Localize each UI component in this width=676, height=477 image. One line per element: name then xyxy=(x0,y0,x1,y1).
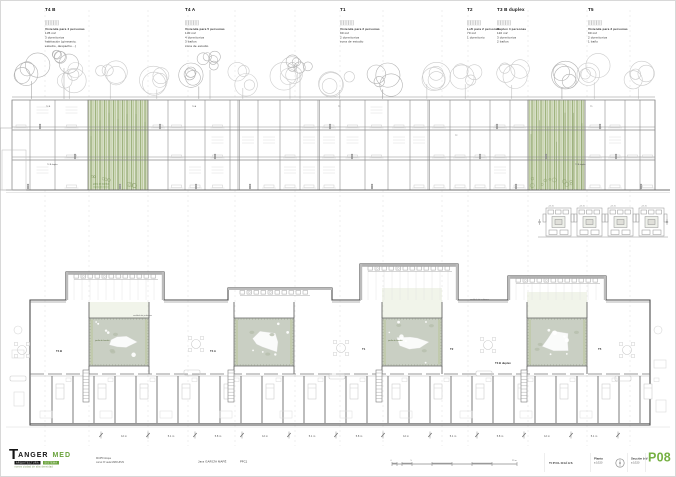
titleblock-divider xyxy=(544,453,545,472)
dimension-label: 5.1 m xyxy=(591,434,598,438)
courtyard-label: jardín de bambú xyxy=(387,340,402,342)
dimension-label: 5.8 m xyxy=(356,434,363,438)
plan-unit-label: T3 B duplex xyxy=(495,361,511,365)
dimension-label: 12 m xyxy=(262,434,268,438)
keyplan-level-label: +05.20 xyxy=(641,206,647,208)
project-credits: MUP5 bloque curso Nº aula MMCUP29 xyxy=(96,457,124,465)
section-room-label: T4 B duplex xyxy=(47,164,58,166)
key-plan: +05.20+05.20+05.20+05.20 xyxy=(538,206,668,238)
titleblock-divider xyxy=(627,453,628,472)
planta-scale-block: Planta a 1/150 xyxy=(594,458,603,465)
sheet-number: P08 xyxy=(648,451,671,466)
logo-med: MED xyxy=(52,451,71,459)
logo-rest: ANGER xyxy=(18,451,48,459)
project-code: PFC1 xyxy=(240,461,247,464)
courtyard-label: jardín de bambú xyxy=(94,340,109,342)
dimension-label: 5.1 m xyxy=(309,434,316,438)
sheet-subject: TIPOLOGÍAS xyxy=(549,462,573,466)
grid-guides xyxy=(45,10,630,446)
plan-unit-label: T1 xyxy=(362,347,366,351)
floor-plan-drawing: T4 BT4 AT1T2T3 B duplexT5vestíbulo de ja… xyxy=(6,264,670,427)
trees-sketch xyxy=(14,50,654,99)
keyplan-level-label: +05.20 xyxy=(610,206,616,208)
credit-line-2: curso Nº aula MMCUP29 xyxy=(96,461,124,465)
title-block: TANGERMED ARQUITECTURA SISTEMA nueva ciu… xyxy=(0,446,676,477)
dimension-row: 12 m5.1 m5.8 m12 m5.1 m5.8 m12 m5.1 m5.8… xyxy=(99,432,619,439)
titleblock-divider xyxy=(645,453,646,472)
atrium-label: patio de bambú xyxy=(93,183,110,186)
planta-title: Planta xyxy=(594,458,603,461)
dimension-label: 12 m xyxy=(403,434,409,438)
planta-scale: a 1/150 xyxy=(594,461,603,464)
dimension-label: 5.8 m xyxy=(215,434,222,438)
seccion-scale: a 1/150 xyxy=(631,461,648,464)
plan-unit-label: T2 xyxy=(450,347,454,351)
dimension-label: 12 m xyxy=(121,434,127,438)
plan-note-label: vestíbulo de jardineras xyxy=(470,298,489,301)
logo-bar-sistema: SISTEMA xyxy=(43,461,59,465)
logo-tanger-med: TANGERMED ARQUITECTURA SISTEMA nueva ciu… xyxy=(9,449,71,468)
section-room-label: T4 A xyxy=(192,105,197,108)
plan-unit-label: T5 xyxy=(598,347,602,351)
logo-bars: ARQUITECTURA SISTEMA xyxy=(15,461,72,465)
dimension-label: 12 m xyxy=(544,434,550,438)
logo-wordmark: TANGERMED xyxy=(9,449,71,460)
dimension-label: 5.1 m xyxy=(450,434,457,438)
plan-unit-label: T4 A xyxy=(210,349,216,353)
keyplan-level-label: +05.20 xyxy=(548,206,554,208)
keyplan-level-label: +05.20 xyxy=(579,206,585,208)
plan-unit-label: T4 B xyxy=(56,349,62,353)
author-name: Jara GARCÍA MAFÉ xyxy=(198,461,227,464)
seccion-title: Sección b-b' xyxy=(631,458,648,461)
logo-bar-arquitectura: ARQUITECTURA xyxy=(15,461,41,465)
atrium-label-sub: vegetación interior xyxy=(93,186,109,189)
section-drawing: T4 BT4 B duplexT4 AT1T2T3 B duplexT5pati… xyxy=(0,50,670,192)
logo-caption: nueva ciudad de alta densidad xyxy=(15,465,72,468)
titleblock-divider xyxy=(590,453,591,472)
section-room-label: T3 B duplex xyxy=(575,164,586,166)
plan-note-label: vestíbulo de jardineras xyxy=(133,314,152,317)
section-room-label: T4 B xyxy=(46,106,51,108)
drawing-layer: T4 BT4 B duplexT4 AT1T2T3 B duplexT5pati… xyxy=(0,0,676,477)
seccion-scale-block: Sección b-b' a 1/150 xyxy=(631,458,648,465)
dimension-label: 5.8 m xyxy=(497,434,504,438)
dimension-label: 5.1 m xyxy=(168,434,175,438)
drawing-sheet: T4 BT4 B duplexT4 AT1T2T3 B duplexT5pati… xyxy=(0,0,676,477)
